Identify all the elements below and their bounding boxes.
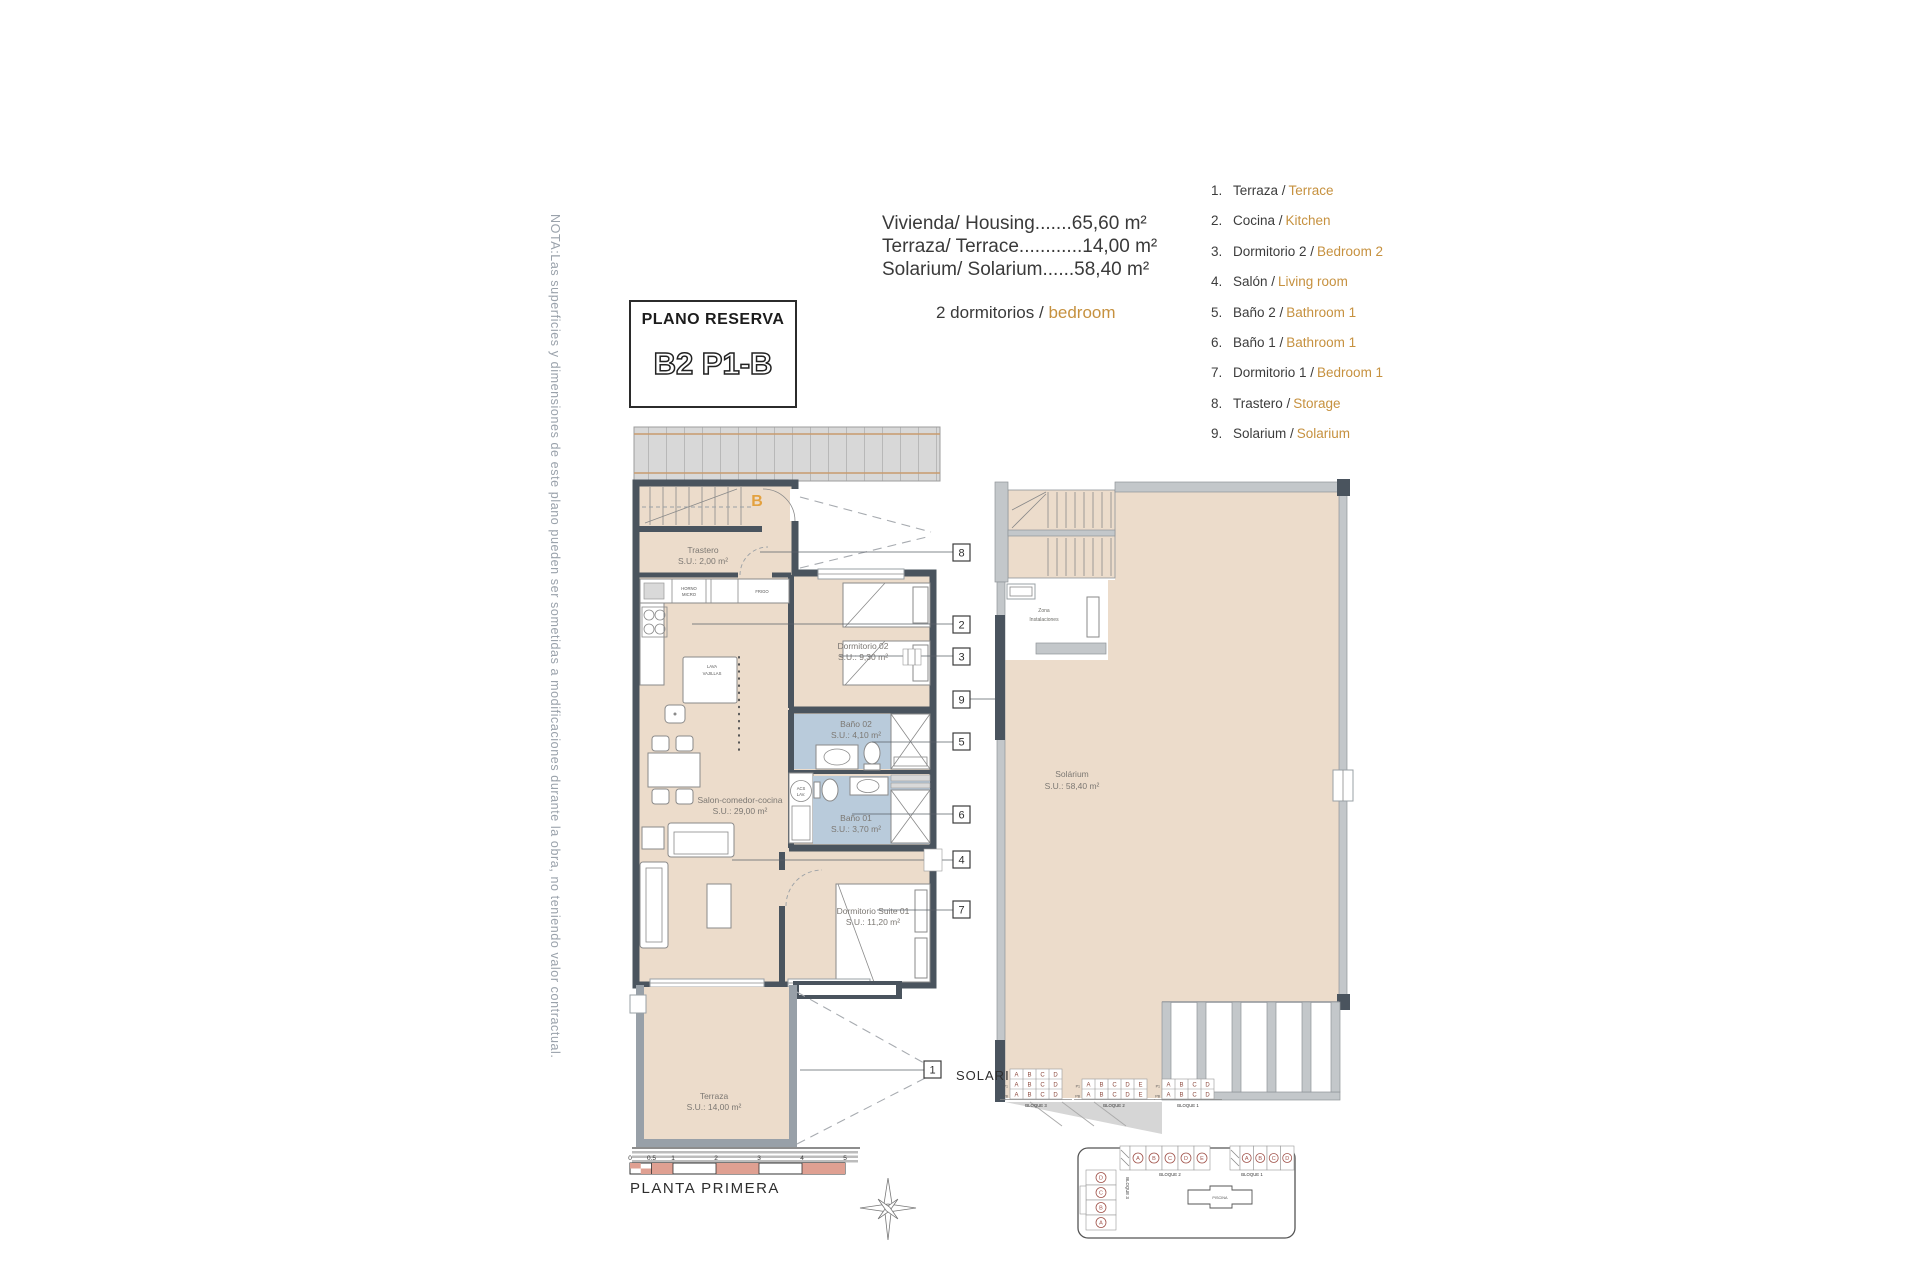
pool-label: PISCINA	[1212, 1196, 1228, 1200]
chair	[676, 736, 693, 751]
unit-letter: C	[1272, 1156, 1276, 1162]
terrace-floor	[640, 987, 793, 1143]
scale-1: 1	[671, 1155, 675, 1162]
section-stripes	[632, 1148, 860, 1163]
unit-letter: D	[1285, 1156, 1289, 1162]
stairs-stub	[1080, 1186, 1086, 1214]
bathroom1-area: S.U.: 3,70 m²	[831, 824, 881, 834]
scale-3: 3	[757, 1155, 761, 1162]
cell: B	[1099, 1093, 1103, 1099]
cell: D	[1205, 1093, 1210, 1099]
terrace: Terraza S.U.: 14,00 m²	[630, 985, 860, 1163]
chair	[652, 789, 669, 804]
corner-block	[1337, 479, 1350, 496]
block-table-bloque1: P1 A B C D PB A B C D BLOQUE 1	[1154, 1079, 1222, 1108]
unit-letter: E	[1200, 1156, 1204, 1162]
solarium-plan: Zona Instalaciones Solárium S.U.: 58,40 …	[995, 479, 1353, 1134]
cell: D	[1053, 1073, 1058, 1079]
compass-rose	[860, 1178, 916, 1240]
row-label-p1: P1	[1156, 1085, 1160, 1089]
row-label-pb: PB	[1155, 1095, 1160, 1099]
bloque2-site-label: BLOQUE 2	[1159, 1172, 1181, 1177]
bathroom1: Baño 01 S.U.: 3,70 m²	[813, 775, 930, 844]
salon-area: S.U.: 29,00 m²	[713, 806, 768, 816]
cell: B	[1179, 1083, 1183, 1089]
cell: D	[1053, 1083, 1058, 1089]
cell: A	[1086, 1083, 1090, 1089]
utility-wall	[1036, 643, 1106, 654]
loveseat	[668, 823, 734, 857]
cell: A	[1086, 1093, 1090, 1099]
bloque1-site-label: BLOQUE 1	[1241, 1172, 1263, 1177]
cell: D	[1053, 1093, 1058, 1099]
corner-window	[799, 985, 896, 995]
scale-5: 5	[843, 1155, 847, 1162]
solarium-area: S.U.: 58,40 m²	[1045, 781, 1100, 791]
toilet	[822, 779, 838, 801]
callout-2: 2	[958, 620, 964, 632]
cell-highlighted: B	[1099, 1083, 1103, 1089]
utility-label-2: Instalaciones	[1029, 617, 1059, 623]
callout-4: 4	[958, 855, 964, 867]
callout-1: 1	[929, 1065, 935, 1077]
unit-letter: C	[1168, 1156, 1172, 1162]
callout-6: 6	[958, 810, 964, 822]
callout-7: 7	[958, 905, 964, 917]
cell: D	[1125, 1093, 1130, 1099]
cell: D	[1205, 1083, 1210, 1089]
cell: B	[1027, 1073, 1031, 1079]
cell: E	[1138, 1093, 1142, 1099]
kitchen-side-counter	[640, 603, 664, 685]
bathroom2-area: S.U.: 4,10 m²	[831, 730, 881, 740]
callout-5: 5	[958, 737, 964, 749]
bloque3-site-label: BLOQUE 3	[1125, 1177, 1130, 1199]
cell: C	[1192, 1083, 1197, 1089]
fridge-label: FRIGO	[755, 589, 769, 594]
shelf	[891, 775, 930, 781]
suite-area: S.U.: 11,20 m²	[846, 917, 900, 927]
trastero-area: S.U.: 2,00 m²	[678, 556, 728, 566]
unit-letter: D	[1099, 1176, 1103, 1182]
chair	[652, 736, 669, 751]
utility-window	[1007, 584, 1035, 599]
terrace-window	[630, 995, 646, 1013]
cell: C	[1040, 1093, 1045, 1099]
callout-9: 9	[958, 695, 964, 707]
cell: B	[1027, 1083, 1031, 1089]
scale-4: 4	[800, 1155, 804, 1162]
salon-name: Salon-comedor-cocina	[697, 795, 782, 805]
toilet-tank	[814, 782, 820, 798]
coffee-table	[707, 884, 731, 928]
unit-letter: A	[1245, 1156, 1249, 1162]
cell: A	[1166, 1093, 1170, 1099]
entrance-block-letter: B	[751, 493, 763, 510]
terrace-name: Terraza	[700, 1091, 729, 1101]
acs-label-2: LAV.	[797, 792, 805, 797]
bathroom2-name: Baño 02	[840, 719, 872, 729]
solarium-right-wall	[1339, 492, 1347, 1002]
side-table	[642, 827, 664, 849]
bloque1-table-label: BLOQUE 1	[1177, 1103, 1199, 1108]
callout-8: 8	[958, 548, 964, 560]
utility-label-1: Zona	[1038, 608, 1050, 614]
row-label-p1: P1	[1076, 1085, 1080, 1089]
unit-letter: B	[1258, 1156, 1262, 1162]
dining-table	[648, 753, 700, 787]
bloque3-table-label: BLOQUE 3	[1025, 1103, 1047, 1108]
cell: C	[1040, 1083, 1045, 1089]
row-label-p1: P1	[1004, 1085, 1008, 1089]
bedroom2-area: S.U.: 9,30 m²	[838, 652, 888, 662]
scale-2: 2	[714, 1155, 718, 1162]
chair	[676, 789, 693, 804]
shelf	[891, 783, 930, 788]
main-apartment: B Trastero S.U.: 2,00 m² HORNO MICRO FRI…	[636, 483, 933, 999]
unit-letter: B	[1099, 1206, 1103, 1212]
wall-marker	[903, 649, 921, 665]
cell: A	[1014, 1083, 1018, 1089]
dishwasher-label-2: VAJILLAS	[703, 671, 722, 676]
cell: C	[1112, 1093, 1117, 1099]
toilet-tank	[864, 764, 880, 770]
floor-plan-drawing: B Trastero S.U.: 2,00 m² HORNO MICRO FRI…	[0, 0, 1920, 1280]
utility-zone: Zona Instalaciones	[1007, 584, 1106, 654]
site-keyplan: A B C D E BLOQUE 2 A B C D BLOQUE 1 D	[1078, 1146, 1295, 1238]
acs-closet	[789, 773, 813, 843]
dishwasher-label-1: LAVA	[707, 664, 717, 669]
callout-3: 3	[958, 652, 964, 664]
cell: C	[1112, 1083, 1117, 1089]
wall-segment	[995, 615, 1005, 740]
row-label-pb: PB	[1075, 1095, 1080, 1099]
bathroom1-name: Baño 01	[840, 813, 872, 823]
cell: C	[1040, 1073, 1045, 1079]
cell: D	[1125, 1083, 1130, 1089]
utility-equipment	[1087, 597, 1099, 637]
bedroom2-name: Dormitorio 02	[837, 641, 888, 651]
floorplan-page: NOTA:Las superficies y dimensiones de es…	[0, 0, 1920, 1280]
sofa	[640, 862, 668, 948]
toilet	[864, 742, 880, 764]
stair-wall-left	[995, 482, 1008, 582]
cell: A	[1166, 1083, 1170, 1089]
solarium-name: Solárium	[1055, 769, 1089, 779]
unit-letter: B	[1152, 1156, 1156, 1162]
scale-05: 0.5	[647, 1155, 656, 1162]
unit-letter: D	[1184, 1156, 1188, 1162]
cell: A	[1014, 1073, 1018, 1079]
oven-label-1: HORNO	[681, 586, 697, 591]
pillow	[913, 587, 928, 623]
terrace-area: S.U.: 14,00 m²	[687, 1102, 742, 1112]
wall-marker	[924, 849, 942, 871]
solarium-top-wall	[1115, 482, 1349, 492]
cell: B	[1179, 1093, 1183, 1099]
pillow	[915, 890, 927, 932]
suite-name: Dormitorio Suite 01	[837, 906, 910, 916]
trastero-name: Trastero	[687, 545, 719, 555]
acs-label-1: ACS	[797, 786, 806, 791]
kitchen-sink	[644, 583, 664, 599]
scale-0: 0	[628, 1155, 632, 1162]
cell: C	[1192, 1093, 1197, 1099]
unit-letter: A	[1099, 1221, 1103, 1227]
unit-letter: A	[1136, 1156, 1140, 1162]
cell: E	[1138, 1083, 1142, 1089]
plan-title: PLANTA PRIMERA	[630, 1180, 780, 1197]
pillow	[915, 938, 927, 978]
cell: A	[1014, 1093, 1018, 1099]
solarium-slab	[1005, 492, 1339, 1098]
bloque2-table-label: BLOQUE 2	[1103, 1103, 1125, 1108]
unit-letter: C	[1099, 1191, 1103, 1197]
cell: B	[1027, 1093, 1031, 1099]
row-label-pb: PB	[1003, 1095, 1008, 1099]
oven-label-2: MICRO	[682, 592, 697, 597]
pergola-roof	[634, 427, 940, 481]
water-heater-closet: ACS LAV.	[789, 773, 813, 843]
